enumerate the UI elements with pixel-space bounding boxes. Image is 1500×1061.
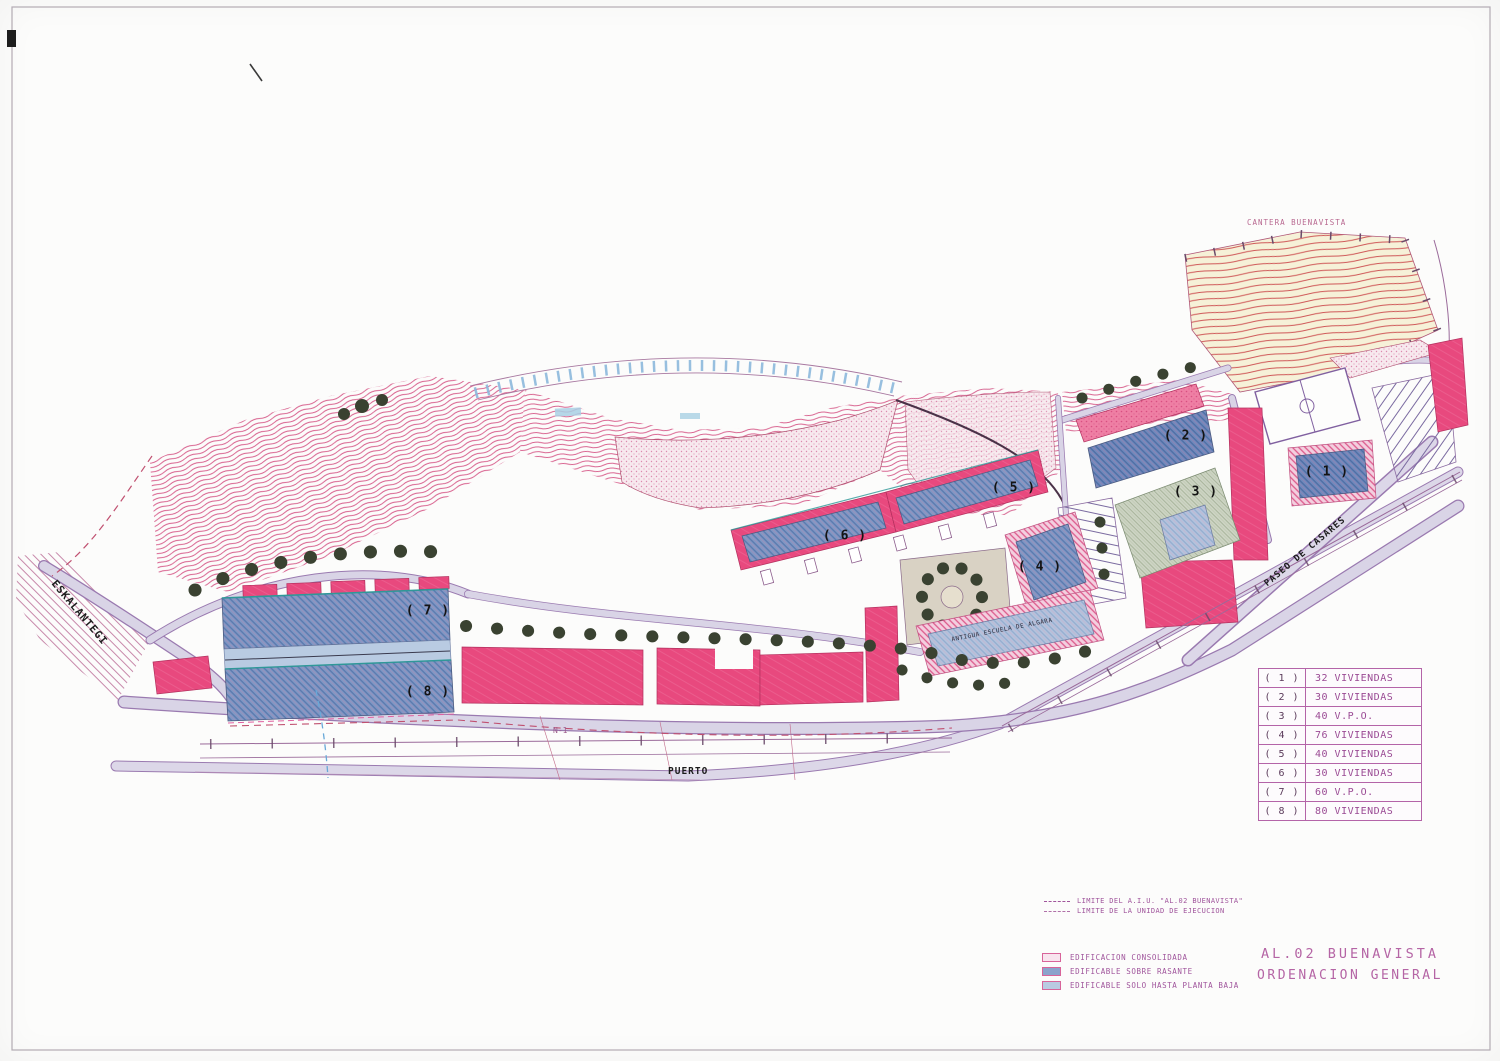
plot-number: ( 5 )	[1259, 745, 1306, 763]
consolidated-swatch	[1042, 953, 1061, 962]
legend-row: EDIFICACION CONSOLIDADA	[1042, 950, 1239, 964]
plot-units: 80 VIVIENDAS	[1306, 806, 1421, 817]
marker-plot-5: ( 5 )	[992, 481, 1036, 496]
dashed-line-sample	[1044, 901, 1070, 902]
plan-subtitle: ORDENACION GENERAL	[1240, 968, 1460, 983]
legend-label: LIMITE DE LA UNIDAD DE EJECUCION	[1077, 907, 1225, 915]
table-row: ( 8 )80 VIVIENDAS	[1259, 801, 1421, 820]
plot-number: ( 7 )	[1259, 783, 1306, 801]
table-row: ( 6 )30 VIVIENDAS	[1259, 763, 1421, 782]
ground-floor-swatch	[1042, 981, 1061, 990]
plot-number: ( 6 )	[1259, 764, 1306, 782]
plot-number: ( 4 )	[1259, 726, 1306, 744]
plot-number: ( 3 )	[1259, 707, 1306, 725]
legend-row: EDIFICABLE SOBRE RASANTE	[1042, 964, 1239, 978]
plot-number: ( 2 )	[1259, 688, 1306, 706]
legend-label: EDIFICACION CONSOLIDADA	[1070, 953, 1188, 962]
marker-plot-1: ( 1 )	[1305, 465, 1349, 480]
legend-label: EDIFICABLE SOLO HASTA PLANTA BAJA	[1070, 981, 1239, 990]
plot-units: 40 V.P.O.	[1306, 711, 1421, 722]
label-puerto: PUERTO	[668, 766, 708, 777]
site-plan-drawing	[0, 0, 1500, 1061]
block-7	[222, 589, 450, 649]
label-cantera-buenavista: CANTERA BUENAVISTA	[1247, 218, 1346, 227]
marker-plot-3: ( 3 )	[1174, 485, 1218, 500]
legend-row: LIMITE DE LA UNIDAD DE EJECUCION	[1044, 906, 1243, 916]
legend-label: EDIFICABLE SOBRE RASANTE	[1070, 967, 1193, 976]
registration-mark	[7, 30, 16, 47]
table-row: ( 4 )76 VIVIENDAS	[1259, 725, 1421, 744]
marker-plot-7: ( 7 )	[406, 604, 450, 619]
plot-number: ( 8 )	[1259, 802, 1306, 820]
dash-dot-line-sample	[1044, 911, 1070, 912]
plot-units: 32 VIVIENDAS	[1306, 673, 1421, 684]
marker-plot-8: ( 8 )	[406, 685, 450, 700]
table-row: ( 7 )60 V.P.O.	[1259, 782, 1421, 801]
blue-tick-channel	[475, 365, 898, 393]
legend-row: EDIFICABLE SOLO HASTA PLANTA BAJA	[1042, 978, 1239, 992]
label-road-n1: N-1	[553, 726, 567, 735]
plan-sheet: CANTERA BUENAVISTA ESKALANTEGI PASEO DE …	[0, 0, 1500, 1061]
boundary-line-legend: LIMITE DEL A.I.U. "AL.02 BUENAVISTA" LIM…	[1044, 896, 1243, 916]
plot-units: 76 VIVIENDAS	[1306, 730, 1421, 741]
legend-row: LIMITE DEL A.I.U. "AL.02 BUENAVISTA"	[1044, 896, 1243, 906]
plot-units: 60 V.P.O.	[1306, 787, 1421, 798]
plan-title: AL.02 BUENAVISTA	[1240, 946, 1460, 962]
plot-units: 30 VIVIENDAS	[1306, 692, 1421, 703]
plot-units: 30 VIVIENDAS	[1306, 768, 1421, 779]
buildable-swatch	[1042, 967, 1061, 976]
legend-label: LIMITE DEL A.I.U. "AL.02 BUENAVISTA"	[1077, 897, 1243, 905]
marker-plot-2: ( 2 )	[1164, 429, 1208, 444]
table-row: ( 1 )32 VIVIENDAS	[1259, 669, 1421, 687]
fill-legend: EDIFICACION CONSOLIDADA EDIFICABLE SOBRE…	[1042, 950, 1239, 992]
plot-number: ( 1 )	[1259, 669, 1306, 687]
pen-mark	[250, 64, 262, 81]
title-block: AL.02 BUENAVISTA ORDENACION GENERAL	[1240, 946, 1460, 983]
plot-units: 40 VIVIENDAS	[1306, 749, 1421, 760]
table-row: ( 3 )40 V.P.O.	[1259, 706, 1421, 725]
marker-plot-6: ( 6 )	[823, 529, 867, 544]
marker-plot-4: ( 4 )	[1018, 560, 1062, 575]
units-table: ( 1 )32 VIVIENDAS ( 2 )30 VIVIENDAS ( 3 …	[1258, 668, 1422, 821]
table-row: ( 2 )30 VIVIENDAS	[1259, 687, 1421, 706]
table-row: ( 5 )40 VIVIENDAS	[1259, 744, 1421, 763]
